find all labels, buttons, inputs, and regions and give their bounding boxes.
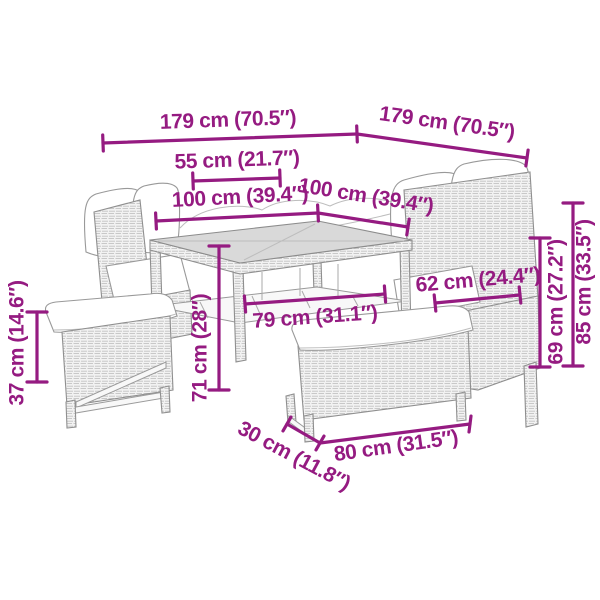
dim-tick	[193, 173, 194, 189]
dim-overall-width-left: 179 cm (70.5″)	[103, 106, 358, 151]
dim-bench-height: 37 cm (14.6″)	[6, 280, 48, 405]
bench-leg	[456, 392, 466, 421]
dim-tick	[156, 213, 157, 229]
bench-left	[45, 293, 177, 428]
dim-line	[193, 178, 280, 181]
bench-leg	[66, 400, 76, 428]
dim-tick	[103, 135, 104, 151]
dim-line	[156, 213, 318, 221]
dim-table-top-left-edge: 100 cm (39.4″)	[156, 182, 319, 229]
dim-tick	[384, 286, 385, 302]
dim-label-overall-height: 85 cm (33.5″)	[573, 219, 596, 344]
dim-label-backrest-height: 69 cm (27.2″)	[545, 239, 568, 364]
bench-leg	[160, 386, 170, 413]
table-leg-front	[233, 268, 246, 362]
dim-tick	[526, 150, 528, 166]
dim-label-bench-height: 37 cm (14.6″)	[6, 280, 29, 405]
dim-label-seat-depth: 55 cm (21.7″)	[174, 146, 300, 173]
dim-tick	[434, 295, 436, 311]
dim-label-table-height: 71 cm (28″)	[189, 294, 212, 402]
dim-label-overall-width-right: 179 cm (70.5″)	[378, 102, 516, 144]
dim-bench-length: 80 cm (31.5″)	[320, 416, 471, 466]
dim-label-overall-width-left: 179 cm (70.5″)	[159, 106, 296, 134]
product-dimension-image: 179 cm (70.5″) 179 cm (70.5″) 55 cm (21.…	[0, 0, 600, 600]
dim-line	[103, 134, 357, 143]
bench-body	[62, 316, 173, 406]
dim-tick	[519, 287, 521, 303]
dim-overall-height: 85 cm (33.5″)	[563, 203, 596, 366]
dim-tick	[469, 416, 471, 432]
dim-overall-width-right: 179 cm (70.5″)	[357, 102, 528, 166]
dim-tick	[244, 296, 245, 312]
sofa-leg	[524, 362, 538, 427]
